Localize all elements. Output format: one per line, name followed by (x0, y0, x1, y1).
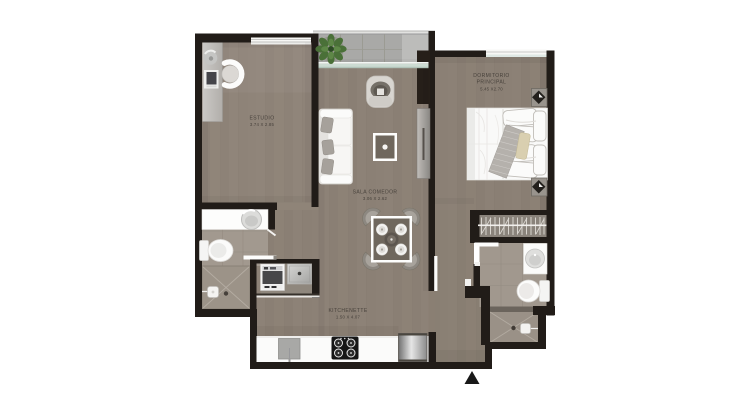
svg-text:SALA COMEDOR: SALA COMEDOR (353, 190, 398, 196)
svg-text:3.74 X 2.85: 3.74 X 2.85 (250, 122, 275, 127)
svg-text:DORMITORIO: DORMITORIO (473, 73, 509, 79)
svg-text:5.45 X2.70: 5.45 X2.70 (480, 87, 503, 92)
svg-text:KITCHENETTE: KITCHENETTE (328, 308, 367, 314)
svg-text:1.50 X 4.07: 1.50 X 4.07 (336, 315, 361, 320)
svg-text:ESTUDIO: ESTUDIO (249, 116, 274, 122)
svg-text:3.06 X 2.62: 3.06 X 2.62 (363, 196, 388, 201)
svg-text:PRINCIPAL: PRINCIPAL (477, 80, 507, 86)
